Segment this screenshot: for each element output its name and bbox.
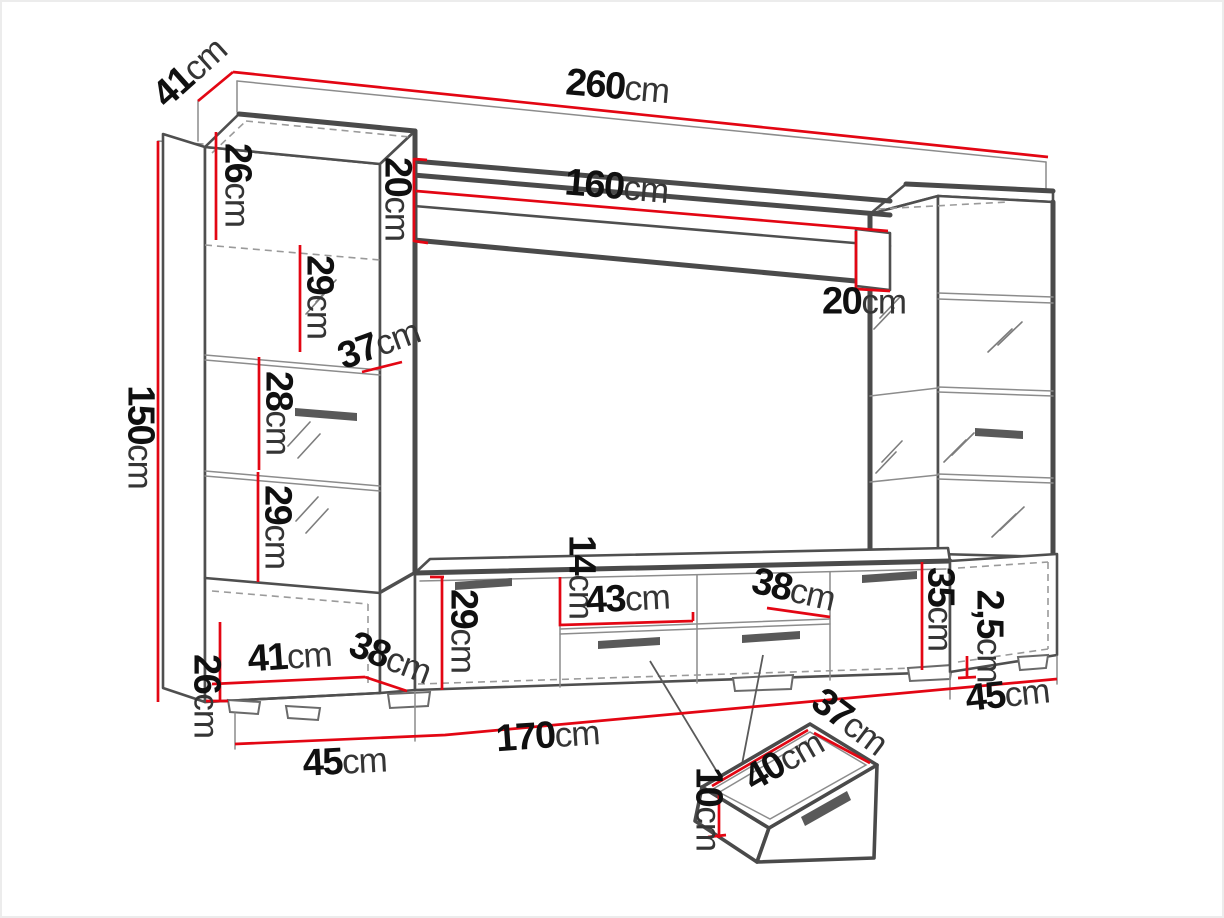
cabinet-foot xyxy=(1018,655,1048,670)
dimension-label-shelf-right-height: 20cm xyxy=(822,281,906,323)
cabinet-foot xyxy=(908,665,952,681)
dimension-label-shelf-length: 160cm xyxy=(563,161,670,212)
dimension-label-overall-width: 260cm xyxy=(564,61,671,112)
cabinet-foot xyxy=(286,706,320,720)
dimension-label-top-cabinet-height: 26cm xyxy=(216,143,258,227)
cabinet-foot xyxy=(228,700,260,714)
diagram-page: 260cm41cm150cm26cm20cm160cm20cm29cm37cm2… xyxy=(0,0,1224,918)
dimension-label-base-right-floor: 45cm xyxy=(963,669,1051,720)
shelf-apron-bottom-edge xyxy=(414,240,888,284)
dimension-label-niche-left-width: 43cm xyxy=(585,575,671,621)
dimension-label-top-depth: 41cm xyxy=(144,29,234,116)
dimension-label-tv-right-door-height: 35cm xyxy=(919,567,961,651)
dimension-label-left-shelf-gap-low: 29cm xyxy=(256,485,298,569)
cabinet-foot xyxy=(733,675,793,691)
dimension-label-shelf-left-height: 20cm xyxy=(376,157,418,241)
dimension-label-base-left-height: 26cm xyxy=(185,654,227,738)
left-cabinet-side-face xyxy=(163,134,205,702)
dimension-label-base-left-width: 41cm xyxy=(246,633,333,681)
dimension-label-overall-height: 150cm xyxy=(119,385,161,489)
right-cabinet-front-face xyxy=(938,196,1053,557)
dimension-label-tv-stand-length: 170cm xyxy=(494,711,600,760)
dimension-label-base-left-floor: 45cm xyxy=(302,738,388,784)
dimension-label-drawer-height: 10cm xyxy=(687,767,729,851)
dimension-label-tv-left-door-height: 29cm xyxy=(442,589,484,673)
cabinet-foot xyxy=(388,692,430,708)
dimension-label-left-shelf-gap-mid: 28cm xyxy=(257,371,299,455)
dimension-label-left-shelf-gap-top: 29cm xyxy=(298,255,340,339)
furniture-dimension-diagram: 260cm41cm150cm26cm20cm160cm20cm29cm37cm2… xyxy=(0,0,1224,918)
right-tall-cabinet xyxy=(870,184,1053,562)
dimension-label-plinth-height: 2,5cm xyxy=(968,590,1010,683)
